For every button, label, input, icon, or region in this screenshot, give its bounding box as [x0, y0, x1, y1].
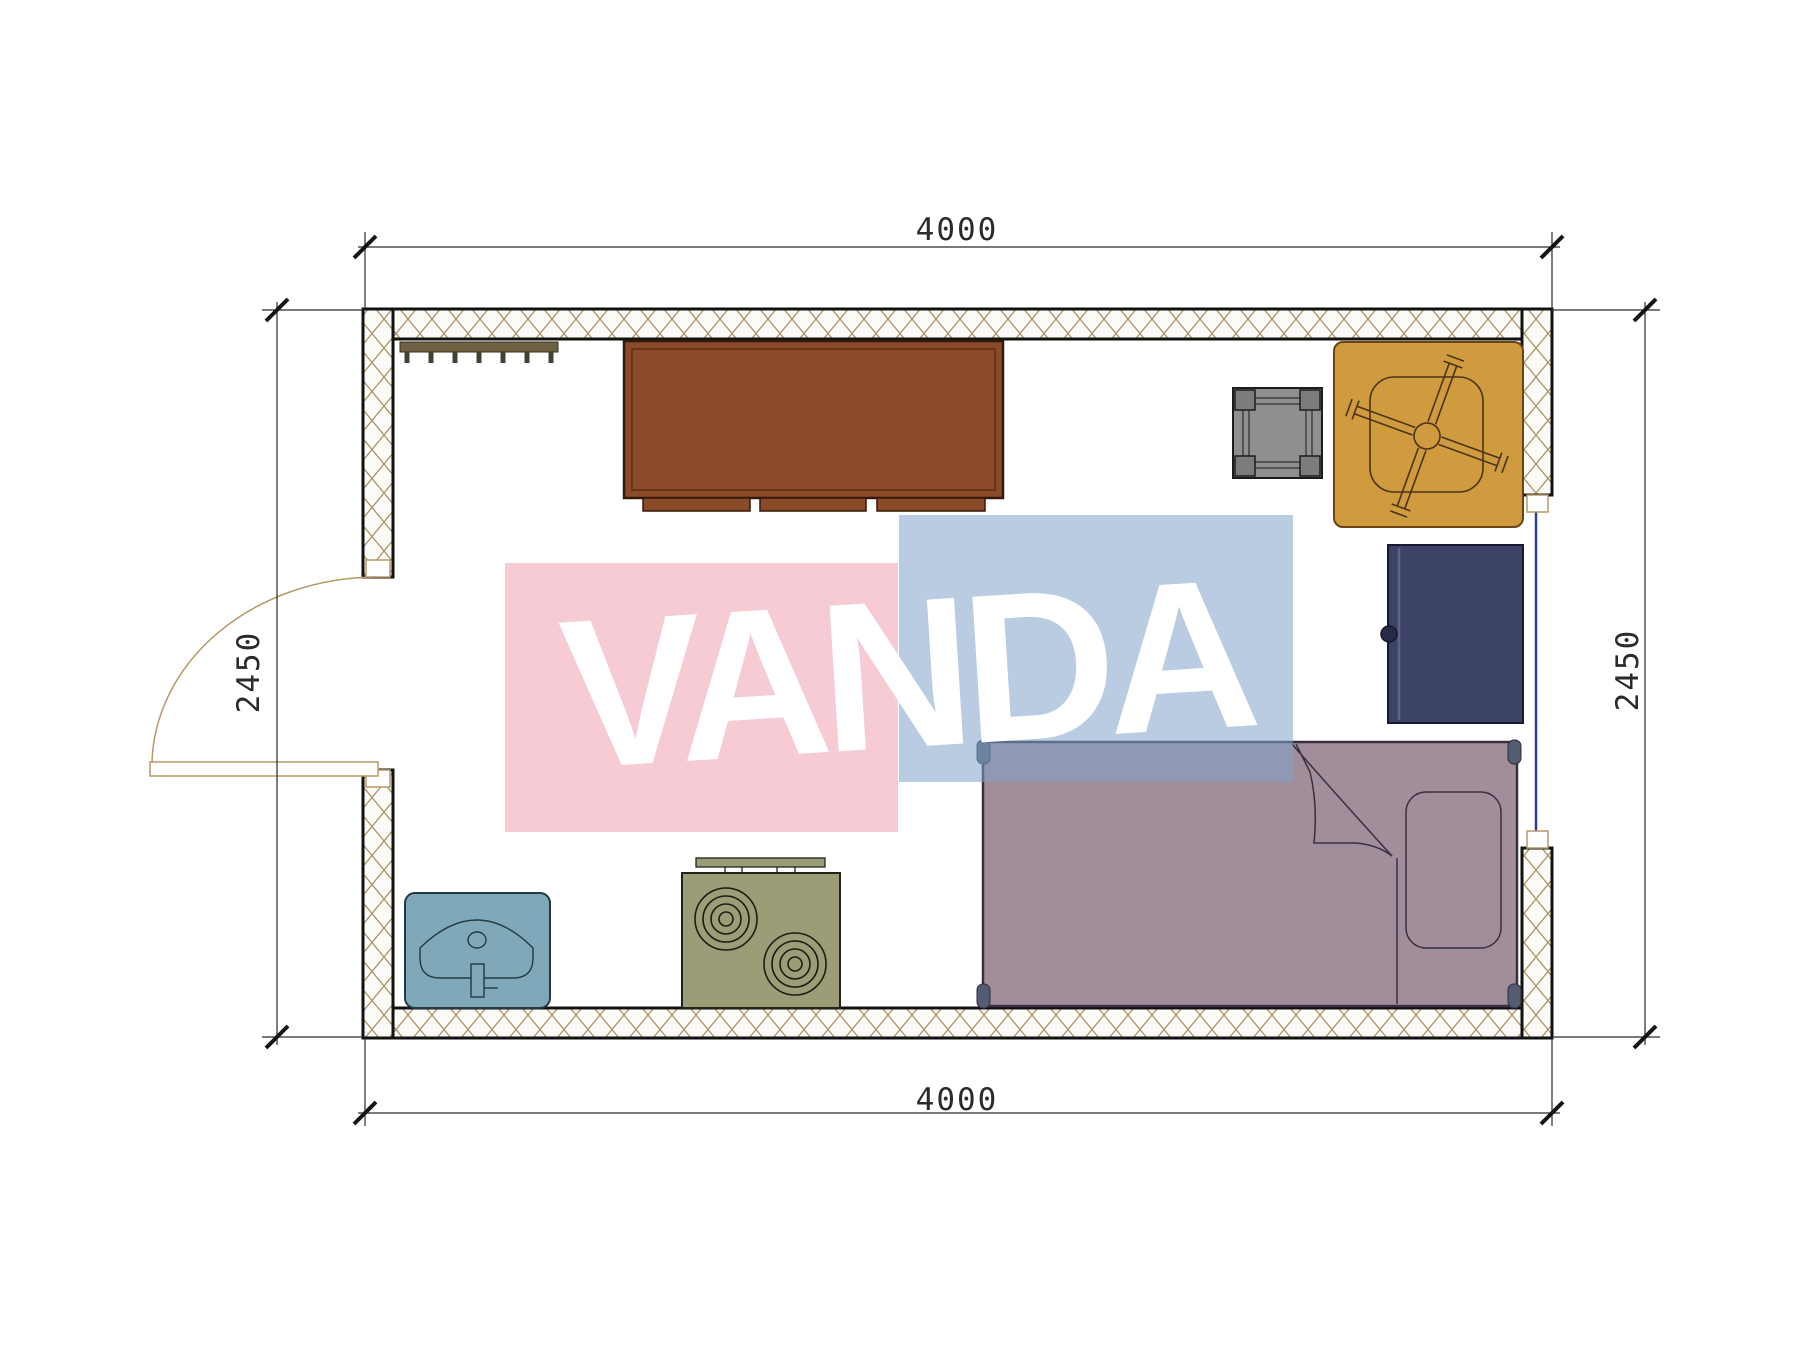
watermark-text: VANDA	[554, 533, 1260, 813]
wardrobe-body	[624, 341, 1003, 498]
window-jamb-top	[1527, 495, 1548, 512]
wall-right-upper	[1522, 309, 1552, 495]
wardrobe-doors	[643, 498, 985, 511]
floor-plan-page: VANDA 4000 4000	[0, 0, 1800, 1350]
wall-left-lower	[363, 770, 393, 1038]
cabinet-body	[1388, 545, 1523, 723]
sink	[405, 893, 550, 1008]
floor-plan-canvas: VANDA 4000 4000	[0, 0, 1800, 1350]
bed-pillow	[1406, 792, 1501, 948]
window-jamb-bottom	[1527, 831, 1548, 848]
dining-table	[1321, 330, 1534, 543]
cabinet-knob	[1381, 626, 1397, 642]
stove-panel	[696, 858, 825, 867]
door-leaf	[150, 762, 378, 776]
dimension-label-top: 4000	[916, 212, 999, 248]
sink-faucet	[471, 964, 484, 997]
stove	[682, 858, 840, 1008]
dimension-label-bottom: 4000	[916, 1082, 999, 1118]
side-table	[1233, 388, 1322, 478]
wall-right-lower	[1522, 848, 1552, 1038]
door-jamb-top	[366, 560, 390, 577]
wardrobe	[624, 341, 1003, 511]
wall-left-upper	[363, 309, 393, 577]
coat-rack-bar	[400, 342, 558, 352]
wall-top	[363, 309, 1552, 339]
dimension-label-right: 2450	[1610, 629, 1646, 712]
dimension-label-left: 2450	[231, 631, 267, 714]
wall-bottom	[363, 1008, 1552, 1038]
cabinet	[1381, 545, 1523, 723]
